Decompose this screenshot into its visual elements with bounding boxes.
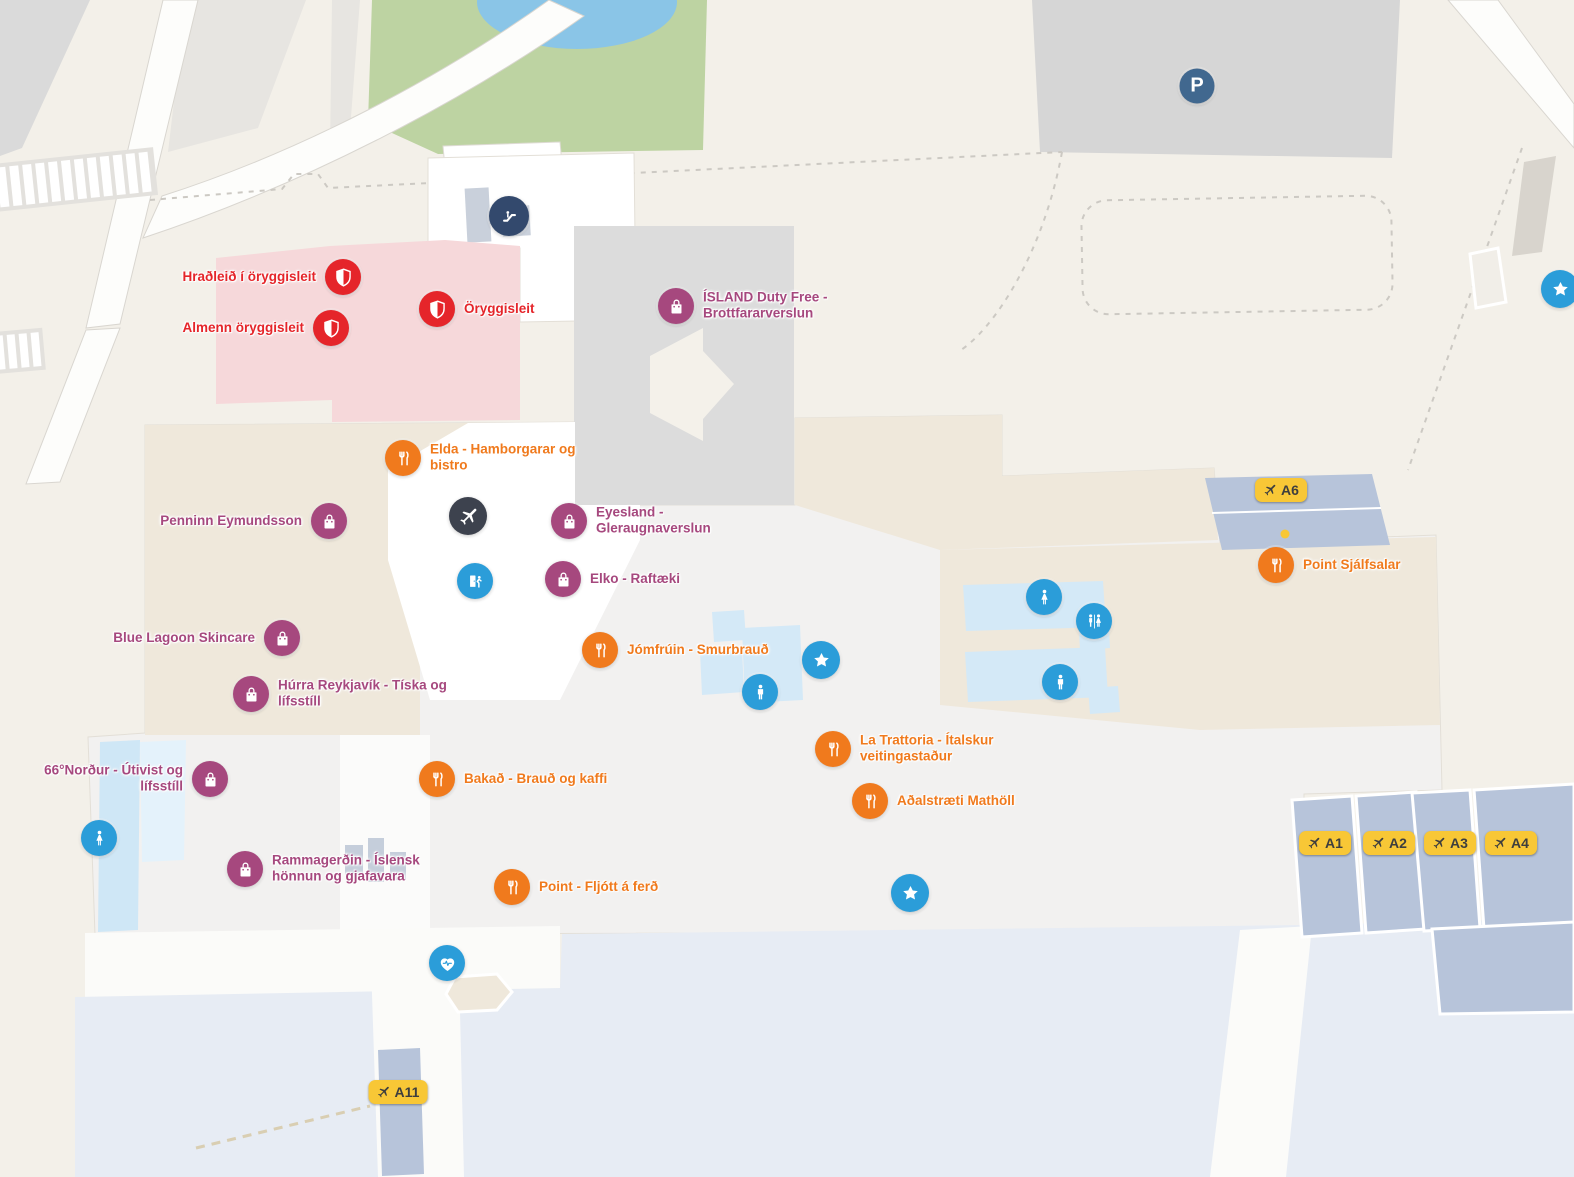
- marker-label: Almenn öryggisleit: [182, 320, 304, 336]
- gate-badge: A3: [1424, 831, 1476, 855]
- toilet-female-icon: [1026, 579, 1062, 615]
- marker-label: Blue Lagoon Skincare: [113, 630, 255, 646]
- shopping-bag-icon: [311, 503, 347, 539]
- defibrillator-icon: [429, 945, 465, 981]
- airplane-icon: [377, 1085, 391, 1099]
- marker-label: Point Sjálfsalar: [1303, 557, 1401, 573]
- marker-label: Point - Fljótt á ferð: [539, 879, 658, 895]
- restaurant-icon: [494, 869, 530, 905]
- gate-code: A3: [1450, 835, 1468, 851]
- security-shield-icon: [313, 310, 349, 346]
- airplane-icon: [1432, 836, 1446, 850]
- gate-code: A1: [1325, 835, 1343, 851]
- shopping-bag-icon: [233, 676, 269, 712]
- shopping-bag-icon: [658, 288, 694, 324]
- restaurant-icon: [852, 783, 888, 819]
- shopping-bag-icon: [264, 620, 300, 656]
- airplane-icon: [1307, 836, 1321, 850]
- gate-code: A6: [1281, 482, 1299, 498]
- toilet-female-icon: [81, 820, 117, 856]
- shopping-bag-icon: [545, 561, 581, 597]
- exit-icon: [457, 563, 493, 599]
- marker-label: Öryggisleit: [464, 301, 535, 317]
- toilet-male-icon: [742, 674, 778, 710]
- marker-label: Penninn Eymundsson: [160, 513, 302, 529]
- restaurant-icon: [385, 440, 421, 476]
- gate-dot-icon: [1281, 530, 1290, 539]
- airplane-icon: [1371, 836, 1385, 850]
- airplane-icon: [449, 497, 487, 535]
- security-shield-icon: [325, 259, 361, 295]
- shopping-bag-icon: [192, 761, 228, 797]
- marker-label: Jómfrúin - Smurbrauð: [627, 642, 769, 658]
- marker-label: Bakað - Brauð og kaffi: [464, 771, 607, 787]
- marker-label: Aðalstræti Mathöll: [897, 793, 1015, 809]
- restaurant-icon: [419, 761, 455, 797]
- star-icon: [1541, 270, 1574, 308]
- marker-layer: PHraðleið í öryggisleitÖryggisleitAlmenn…: [0, 0, 1574, 1177]
- marker-label: Elko - Raftæki: [590, 571, 680, 587]
- toilet-male-icon: [1042, 664, 1078, 700]
- shopping-bag-icon: [551, 503, 587, 539]
- star-icon: [891, 874, 929, 912]
- terminal-map[interactable]: PHraðleið í öryggisleitÖryggisleitAlmenn…: [0, 0, 1574, 1177]
- gate-code: A4: [1511, 835, 1529, 851]
- restaurant-icon: [582, 632, 618, 668]
- marker-label: Hraðleið í öryggisleit: [182, 269, 316, 285]
- star-icon: [802, 641, 840, 679]
- airplane-icon: [1263, 483, 1277, 497]
- escalator-icon: [489, 196, 529, 236]
- gate-badge: A1: [1299, 831, 1351, 855]
- restaurant-icon: [815, 731, 851, 767]
- security-shield-icon: [419, 291, 455, 327]
- parking-letter: P: [1190, 75, 1203, 98]
- shopping-bag-icon: [227, 851, 263, 887]
- gate-code: A2: [1389, 835, 1407, 851]
- gate-badge: A6: [1255, 478, 1307, 502]
- marker-label: La Trattoria - Ítalskur veitingastaður: [860, 733, 1025, 766]
- restaurant-icon: [1258, 547, 1294, 583]
- marker-label: 66°Norður - Útivist og lífsstíll: [28, 763, 183, 796]
- marker-label: Rammagerðin - Íslensk hönnun og gjafavar…: [272, 853, 442, 886]
- toilet-unisex-icon: [1076, 603, 1112, 639]
- gate-badge: A2: [1363, 831, 1415, 855]
- gate-badge: A4: [1485, 831, 1537, 855]
- parking-icon: P: [1180, 69, 1215, 104]
- gate-badge: A11: [369, 1080, 428, 1104]
- airplane-icon: [1493, 836, 1507, 850]
- marker-label: ÍSLAND Duty Free - Brottfararverslun: [703, 290, 843, 323]
- marker-label: Eyesland - Gleraugnaverslun: [596, 505, 736, 538]
- gate-code: A11: [395, 1084, 420, 1100]
- marker-label: Elda - Hamborgarar og bistro: [430, 442, 590, 475]
- marker-label: Húrra Reykjavík - Tíska og lífsstíll: [278, 678, 448, 711]
